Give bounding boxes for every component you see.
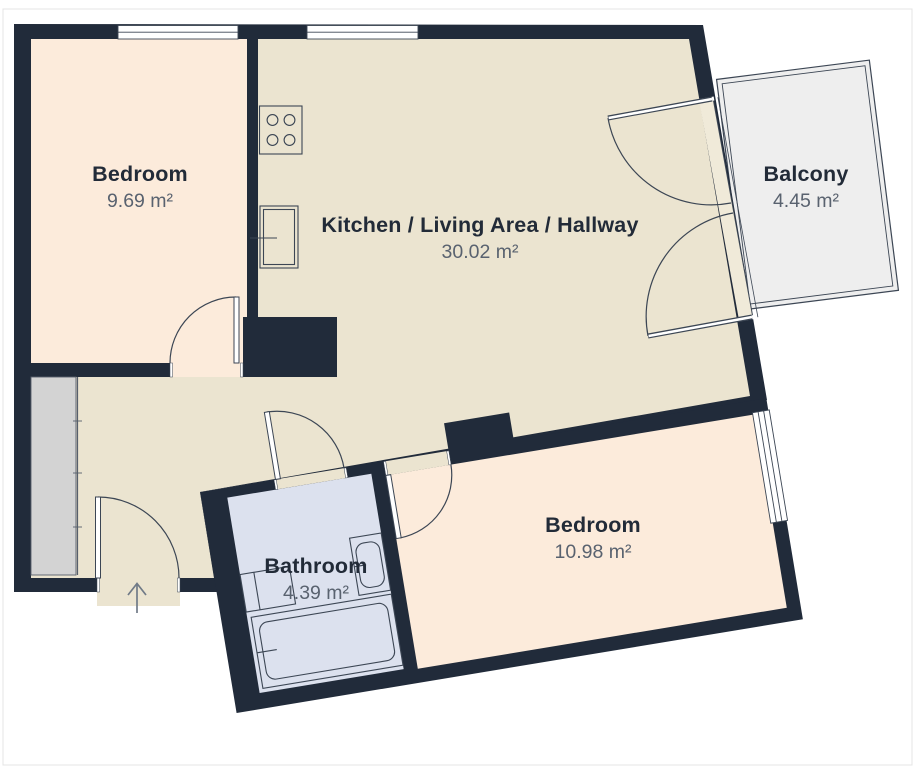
window-kitchen xyxy=(307,26,418,40)
wardrobe xyxy=(31,377,82,575)
window-bedroom-1 xyxy=(118,26,238,40)
wall-bedroom1-hallway xyxy=(31,363,170,377)
stove-icon xyxy=(260,106,303,154)
door-leaf xyxy=(234,297,239,363)
door-leaf xyxy=(96,497,101,578)
floorplan-page: Bedroom 9.69 m² Kitchen / Living Area / … xyxy=(0,0,915,768)
bedroom-1-floor xyxy=(31,39,247,363)
wall-bedroom1-kitchen xyxy=(247,39,258,363)
floorplan-drawing xyxy=(0,0,915,768)
wall-column-kitchen xyxy=(243,317,337,377)
